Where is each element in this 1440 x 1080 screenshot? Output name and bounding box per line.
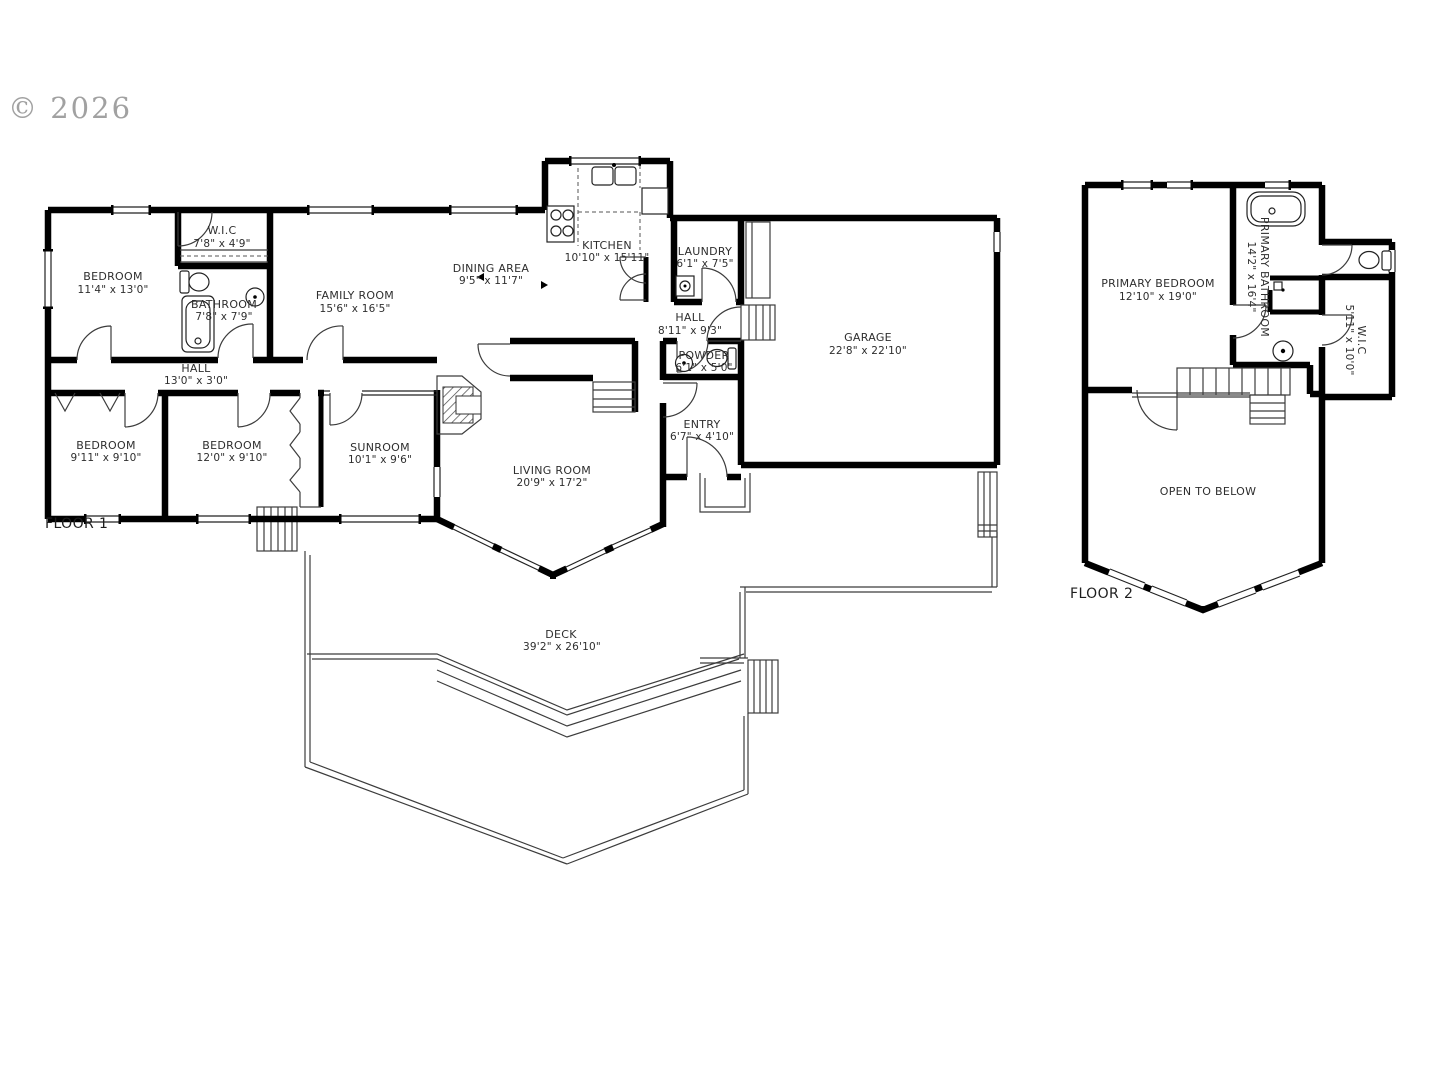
room-label-kitchen-name: KITCHEN xyxy=(582,239,632,252)
room-label-kitchen-dims: 10'10" x 15'11" xyxy=(565,252,650,264)
room-label-garage-dims: 22'8" x 22'10" xyxy=(829,345,907,357)
room-label-wic-dims: 7'8" x 4'9" xyxy=(193,238,250,250)
room-label-dining-area-name: DINING AREA xyxy=(453,262,530,275)
room-label-bedroom2-dims: 9'11" x 9'10" xyxy=(70,452,141,464)
room-label-laundry-dims: 6'1" x 7'5" xyxy=(676,258,733,270)
room-label-primary-bedroom-dims: 12'10" x 19'0" xyxy=(1119,291,1197,303)
room-label-entry-dims: 6'7" x 4'10" xyxy=(670,431,734,443)
room-label-bathroom-name: BATHROOM xyxy=(191,298,257,311)
room-label-garage-name: GARAGE xyxy=(844,331,892,344)
room-label-bedroom3-name: BEDROOM xyxy=(202,439,262,452)
room-label-primary-bedroom-name: PRIMARY BEDROOM xyxy=(1101,277,1215,290)
room-label-open-to-below: OPEN TO BELOW xyxy=(1160,485,1257,498)
room-label-bedroom2-name: BEDROOM xyxy=(76,439,136,452)
room-label-powder-dims: 6'1" x 5'0" xyxy=(675,362,732,374)
room-label-hall-upper-name: HALL xyxy=(675,311,705,324)
room-label-entry-name: ENTRY xyxy=(683,418,720,431)
room-label-bedroom1-dims: 11'4" x 13'0" xyxy=(77,284,148,296)
floor-plan: © 2026 xyxy=(0,0,1440,1080)
room-label-family-room-name: FAMILY ROOM xyxy=(316,289,394,302)
room-label-deck-dims: 39'2" x 26'10" xyxy=(523,641,601,653)
room-label-deck-name: DECK xyxy=(545,628,577,641)
room-label-sunroom-dims: 10'1" x 9'6" xyxy=(348,454,412,466)
room-label-powder-name: POWDER xyxy=(678,349,729,362)
copyright-watermark: © 2026 xyxy=(8,91,132,125)
room-label-living-room-dims: 20'9" x 17'2" xyxy=(516,477,587,489)
room-label-primary-bathroom-name: PRIMARY BATHROOM xyxy=(1258,217,1271,337)
room-label-wic2-dims: 5'11" x 10'0" xyxy=(1343,304,1355,375)
room-label-bathroom-dims: 7'8" x 7'9" xyxy=(195,311,252,323)
room-label-hall-upper-dims: 8'11" x 9'3" xyxy=(658,325,722,337)
room-label-sunroom-name: SUNROOM xyxy=(350,441,410,454)
room-label-dining-area-dims: 9'5" x 11'7" xyxy=(459,275,523,287)
floor1-label: FLOOR 1 xyxy=(45,516,108,532)
room-label-wic-name: W.I.C xyxy=(207,224,236,237)
background xyxy=(0,0,1440,1080)
room-label-living-room-name: LIVING ROOM xyxy=(513,464,591,477)
room-label-primary-bathroom-dims: 14'2" x 16'4" xyxy=(1245,241,1257,312)
room-label-hall-lower-name: HALL xyxy=(181,362,211,375)
room-label-laundry-name: LAUNDRY xyxy=(678,245,732,258)
room-label-family-room-dims: 15'6" x 16'5" xyxy=(319,303,390,315)
room-label-hall-lower-dims: 13'0" x 3'0" xyxy=(164,375,228,387)
floor2-label: FLOOR 2 xyxy=(1070,586,1133,602)
room-label-wic2-name: W.I.C xyxy=(1355,325,1368,354)
room-label-bedroom1-name: BEDROOM xyxy=(83,270,143,283)
room-label-bedroom3-dims: 12'0" x 9'10" xyxy=(196,452,267,464)
